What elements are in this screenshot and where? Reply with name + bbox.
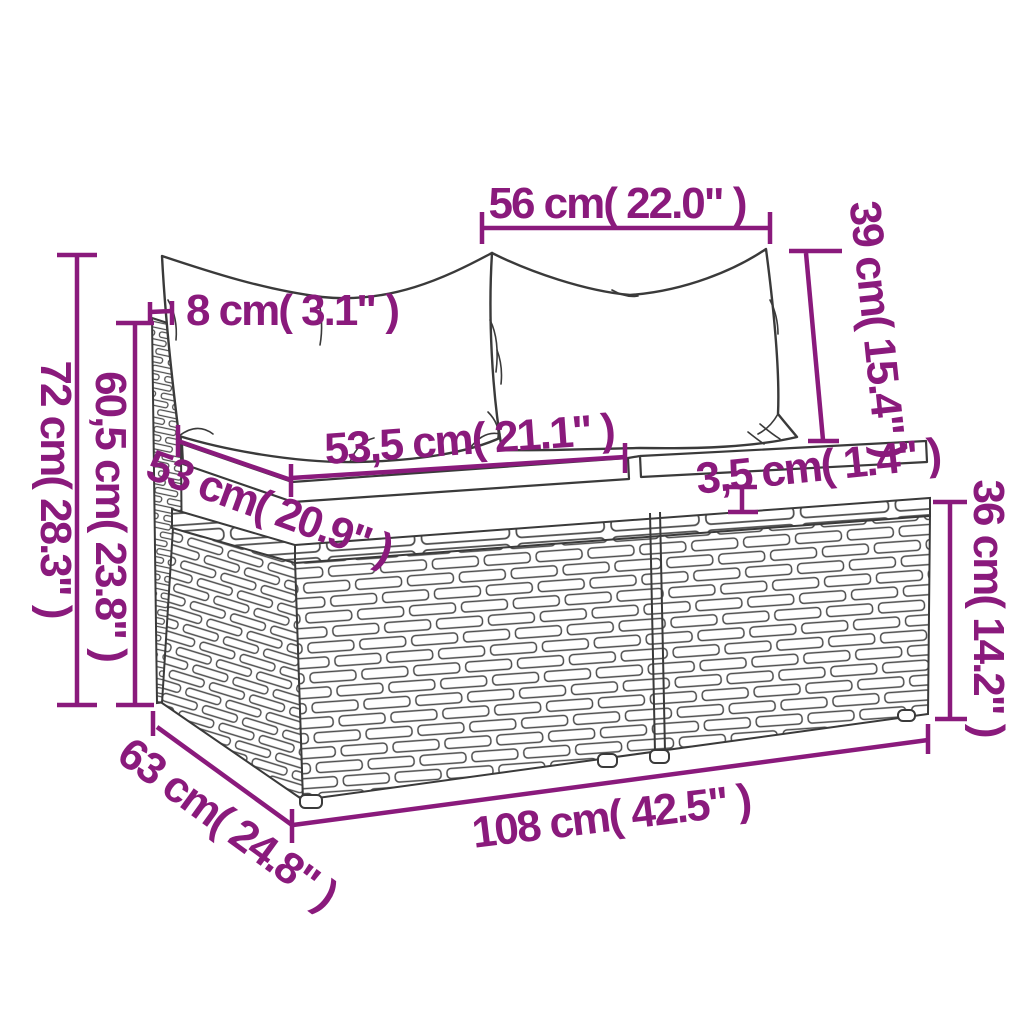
dimension-label-back-height: 60,5 cm( 23.8" )	[88, 371, 132, 661]
sofa-foot	[650, 750, 669, 763]
dimension-39cm-lines	[789, 251, 842, 441]
dimension-label-back-thickness: 8 cm( 3.1" )	[186, 289, 398, 333]
dimension-label-base-height: 36 cm( 14.2" )	[966, 479, 1010, 736]
dimension-36cm-lines	[933, 502, 967, 719]
sofa-foot	[300, 795, 322, 808]
dimension-label-total-height: 72 cm( 28.3" )	[33, 360, 77, 617]
sofa-foot	[898, 710, 915, 721]
sofa-foot	[598, 754, 617, 767]
sofa-diagram-canvas	[0, 0, 1024, 1024]
diagram-stage: 56 cm( 22.0" ) 39 cm( 15.4" ) 8 cm( 3.1"…	[0, 0, 1024, 1024]
dimension-label-pillow-width: 56 cm( 22.0" )	[488, 182, 745, 226]
